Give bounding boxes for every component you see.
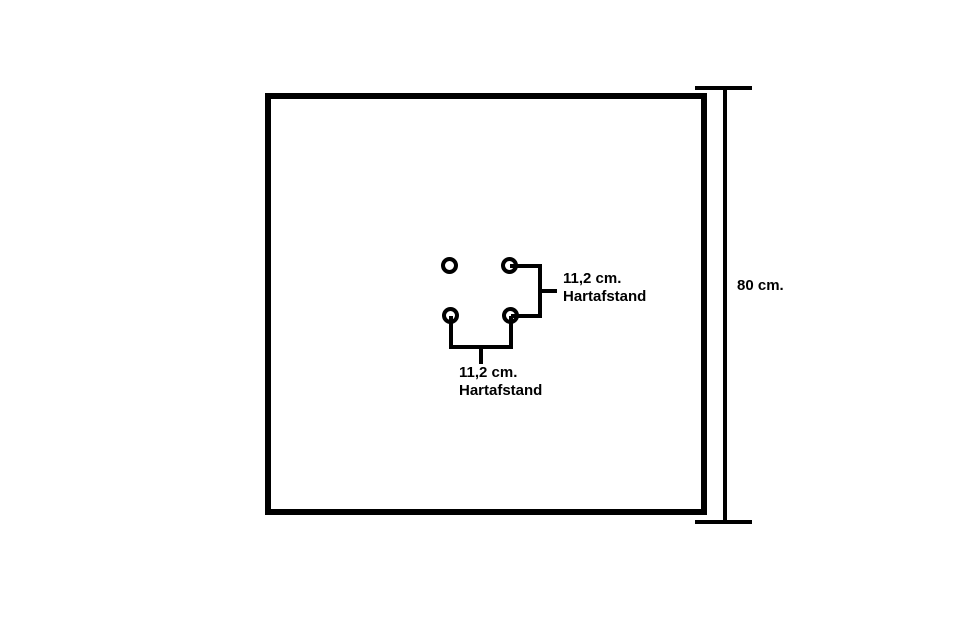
horizontal-spacing-leader-tick [479, 347, 483, 364]
height-dimension-line [723, 90, 727, 520]
drilling-diagram: 80 cm. 11,2 cm. Hartafstand 11,2 cm. Har… [0, 0, 960, 640]
hole-bottom-left-icon [442, 307, 459, 324]
height-dimension-tick-bottom [695, 520, 752, 524]
hole-bottom-right-icon [502, 307, 519, 324]
hole-top-right-icon [501, 257, 518, 274]
height-label: 80 cm. [737, 277, 784, 295]
hole-top-left-icon [441, 257, 458, 274]
vertical-spacing-label: 11,2 cm. Hartafstand [563, 270, 646, 306]
horizontal-spacing-value: 11,2 cm. [459, 364, 542, 382]
horizontal-spacing-caption: Hartafstand [459, 382, 542, 400]
vertical-spacing-leader-tick [540, 289, 557, 293]
vertical-spacing-caption: Hartafstand [563, 288, 646, 306]
horizontal-spacing-label: 11,2 cm. Hartafstand [459, 364, 542, 400]
vertical-spacing-value: 11,2 cm. [563, 270, 646, 288]
